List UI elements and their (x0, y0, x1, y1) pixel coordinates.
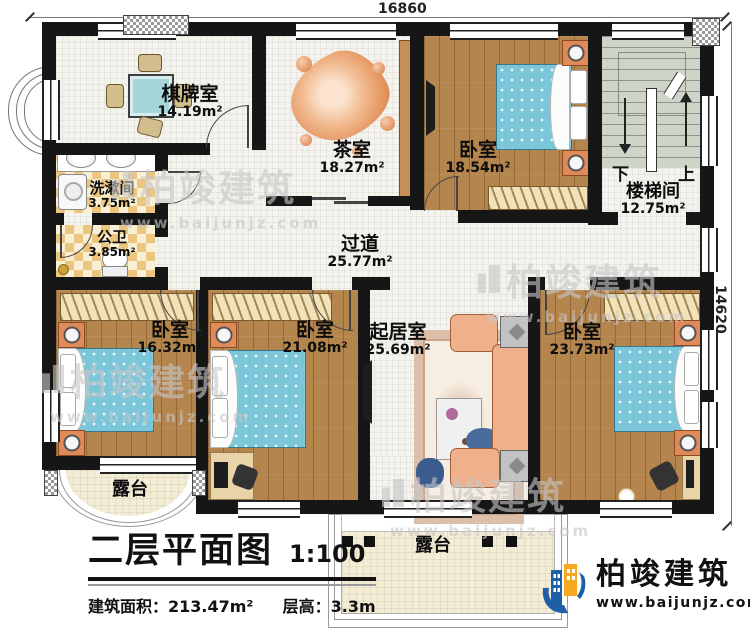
wall (155, 143, 168, 171)
window (700, 330, 718, 390)
wardrobe (488, 186, 588, 210)
sliding-door-panel (312, 197, 346, 200)
stair-stringer (646, 88, 657, 172)
room-label-bedroom-left: 卧室 16.32m² (137, 320, 202, 357)
pillow (684, 390, 699, 424)
door-leaf (168, 171, 201, 173)
room-label-tea: 茶室 18.27m² (319, 140, 384, 177)
sliding-door (384, 500, 472, 518)
door-leaf (60, 225, 62, 258)
art-dot (372, 62, 385, 75)
room-label-terrace-bottom: 露台 (415, 536, 451, 556)
art-dot (380, 116, 395, 131)
wall (528, 277, 545, 290)
room-label-wash: 洗漱间 3.75m² (88, 180, 135, 210)
tv (426, 80, 435, 136)
room-label-terrace-left: 露台 (112, 480, 148, 500)
wall (410, 36, 424, 210)
stair-arrow-up-line (685, 100, 687, 146)
title-underline-thin (88, 584, 376, 586)
window (296, 22, 396, 40)
chair (106, 84, 124, 108)
wall (528, 290, 540, 500)
tv (363, 360, 372, 424)
window (700, 228, 718, 272)
stair-arrow-down (619, 144, 631, 154)
nightstand (58, 430, 85, 456)
wall (56, 143, 210, 155)
dimension-top: 16860 (378, 1, 427, 17)
room-label-bedroom-top: 卧室 18.54m² (445, 140, 510, 177)
plan-title: 二层平面图 (88, 522, 273, 573)
room-label-bedroom-mid: 卧室 21.08m² (282, 320, 347, 357)
sofa-single (450, 448, 500, 488)
washing-machine-drum (64, 182, 83, 201)
nightstand (674, 320, 701, 346)
window (600, 500, 672, 518)
window (700, 96, 718, 166)
stair-arrow-down-line (624, 98, 626, 144)
pillow (212, 356, 228, 396)
shaft-hatch (192, 470, 206, 496)
pillow (684, 352, 699, 386)
room-label-corridor: 过道 25.77m² (327, 234, 392, 271)
pillow (570, 70, 587, 104)
window (42, 390, 60, 442)
room-label-stair: 楼梯间 12.75m² (620, 182, 685, 218)
wall (92, 213, 155, 225)
pillow (570, 106, 587, 140)
wall (590, 277, 714, 290)
window (450, 22, 558, 40)
column (506, 536, 517, 547)
wall (458, 210, 588, 223)
dimension-tick (722, 521, 732, 531)
bed-sheet (550, 64, 570, 150)
floor-height-label: 层高： (283, 597, 331, 616)
wall (602, 212, 618, 225)
art-dot (300, 134, 312, 146)
pillow (60, 392, 76, 426)
wall (352, 277, 390, 290)
company-logo-icon (536, 560, 588, 618)
area-value: 213.47m² (168, 597, 253, 616)
company-logo: 柏竣建筑 www.baijunjz.com (536, 560, 750, 618)
plan-scale: 1:100 (289, 540, 365, 568)
toilet-tank (102, 266, 128, 277)
sliding-door-panel (334, 201, 368, 204)
chair (138, 54, 162, 72)
wardrobe (604, 293, 700, 321)
room-label-bedroom-right: 卧室 23.73m² (549, 322, 614, 359)
wall (155, 203, 168, 237)
company-name: 柏竣建筑 (596, 560, 750, 590)
wall (56, 277, 160, 290)
wall (686, 212, 714, 225)
room-label-living: 起居室 25.69m² (365, 322, 430, 359)
window (238, 500, 300, 518)
floor-drain (58, 264, 69, 275)
table-flowers (446, 408, 458, 420)
tv (686, 460, 694, 488)
floor-height-value: 3.3m (331, 597, 376, 616)
desk-monitor (214, 462, 228, 488)
pillow (212, 398, 228, 438)
shaft-hatch (44, 470, 58, 496)
wall (266, 196, 312, 206)
terrace-door (100, 456, 196, 474)
room-label-chess: 棋牌室 14.19m² (157, 84, 222, 121)
title-underline (88, 577, 376, 581)
door-leaf (456, 176, 458, 211)
company-website: www.baijunjz.com (596, 595, 750, 611)
door-leaf (349, 290, 351, 331)
door-leaf (247, 105, 249, 148)
floor-plan-canvas: 16860 14620 下 上 (0, 0, 750, 632)
wall (200, 277, 312, 290)
title-block: 二层平面图 1:100 建筑面积：213.47m² 层高：3.3m (88, 522, 376, 617)
window (612, 22, 684, 40)
art-dot (296, 56, 312, 72)
sofa-single (450, 314, 498, 352)
room-label-toilet: 公卫 3.85m² (88, 229, 135, 259)
column (482, 536, 493, 547)
wall (252, 36, 266, 150)
nightstand (674, 430, 701, 456)
pillow (60, 354, 76, 388)
nightstand (562, 40, 590, 66)
stair-arrow-up (680, 92, 692, 102)
wall (56, 213, 64, 225)
wall (368, 196, 410, 206)
wall (588, 36, 602, 225)
window (700, 402, 718, 448)
nightstand (210, 322, 237, 348)
dimension-line-right (731, 22, 732, 526)
nightstand (58, 322, 85, 348)
bay-window (42, 80, 60, 140)
area-label: 建筑面积： (88, 597, 168, 616)
nightstand (562, 150, 590, 176)
shaft-hatch (692, 18, 720, 46)
shaft-hatch (123, 15, 189, 35)
person-sitting (416, 458, 444, 488)
door-leaf (545, 290, 547, 335)
dimension-right: 14620 (712, 285, 728, 334)
